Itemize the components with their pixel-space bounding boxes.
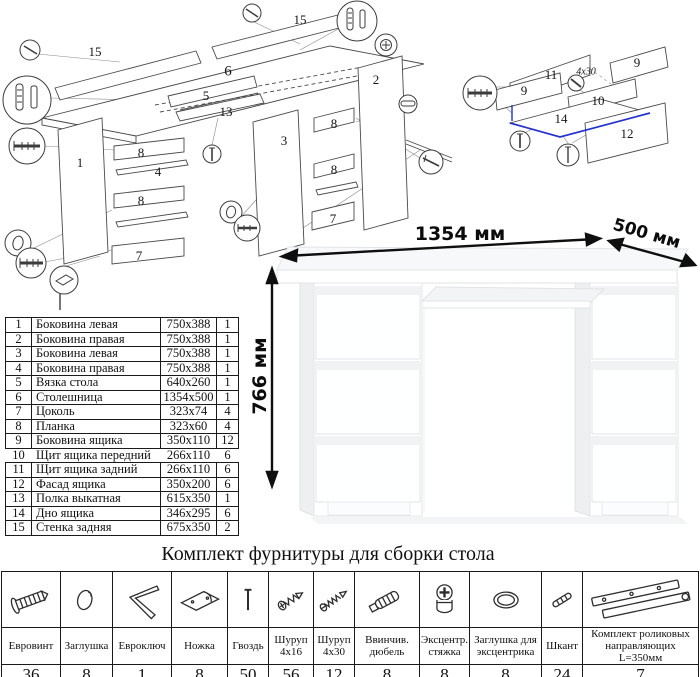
part-name: Дно ящика (32, 506, 161, 521)
part-number-label: 8 (138, 145, 145, 161)
hardware-table-row: ЕвровинтЗаглушкаЕвроключНожкаГвоздьШуруп… (2, 628, 699, 665)
part-number: 15 (6, 521, 32, 536)
callout-nail-icon (20, 40, 40, 60)
exploded-drawer-diagram: 11991014124x30 (450, 35, 700, 225)
parts-table-body: 1Боковина левая750x38812Боковина правая7… (6, 318, 239, 536)
part-size: 640x260 (161, 376, 217, 391)
hardware-icon-cell (420, 572, 470, 628)
part-name: Полка выкатная (32, 492, 161, 507)
parts-table-row: 9Боковина ящика350x11012 (6, 434, 239, 449)
parts-table-row: 12Фасад ящика350x2006 (6, 477, 239, 492)
part-qty: 1 (217, 492, 239, 507)
hardware-table: ЕвровинтЗаглушкаЕвроключНожкаГвоздьШуруп… (1, 571, 699, 677)
part-name: Столешница (32, 390, 161, 405)
part-size: 346x295 (161, 506, 217, 521)
hardware-name: Шуруп 4x16 (269, 628, 314, 665)
hardware-qty: 36 (2, 665, 61, 677)
part-number: 13 (6, 492, 32, 507)
part-qty: 4 (217, 419, 239, 434)
part-number-label: 4 (155, 164, 162, 180)
hardware-name: Шуруп 4x30 (314, 628, 355, 665)
parts-table-row: 7Цоколь323x744 (6, 405, 239, 420)
dowel-screw-icon (356, 572, 418, 627)
hexkey-icon (114, 572, 170, 627)
parts-table-row: 5Вязка стола640x2601 (6, 376, 239, 391)
hardware-qty: 56 (269, 665, 314, 677)
part-number-label: 14 (555, 111, 568, 127)
nail-icon (229, 572, 267, 627)
part-number: 9 (6, 434, 32, 449)
part-size: 750x388 (161, 332, 217, 347)
callout-dowel-sleeve-icon (3, 76, 51, 124)
part-number: 8 (6, 419, 32, 434)
parts-table-row: 11Щит ящика задний266x1106 (6, 463, 239, 478)
euroscrew-icon (3, 572, 59, 627)
part-size: 615x350 (161, 492, 217, 507)
part-qty: 1 (217, 347, 239, 362)
part-number: 11 (6, 463, 32, 478)
hardware-name: Ввинчив. дюбель (355, 628, 420, 665)
part-qty: 1 (217, 318, 239, 333)
part-size: 350x110 (161, 434, 217, 449)
parts-table-row: 10Щит ящика передний266x1106 (6, 448, 239, 463)
hardware-name: Гвоздь (228, 628, 269, 665)
part-qty: 1 (217, 361, 239, 376)
part-number: 10 (6, 448, 32, 463)
hardware-name: Шкант (542, 628, 583, 665)
part-number-label: 8 (331, 162, 338, 178)
part-number-label: 1 (77, 155, 84, 171)
hardware-table-row: 36818505612888247 (2, 665, 699, 677)
hardware-icon-cell (113, 572, 172, 628)
part-number-label: 12 (621, 126, 634, 142)
hardware-name: Евроключ (113, 628, 172, 665)
hardware-icon-cell (228, 572, 269, 628)
parts-table-row: 15Стенка задняя675x3502 (6, 521, 239, 536)
part-qty: 2 (217, 521, 239, 536)
callout-dowel-sleeve-icon (337, 1, 377, 41)
part-size: 323x74 (161, 405, 217, 420)
hardware-name: Ножка (172, 628, 228, 665)
cam-lock-icon (421, 572, 468, 627)
callout-dowel-icon (399, 95, 417, 113)
part-size: 323x60 (161, 419, 217, 434)
hardware-icon-cell (314, 572, 355, 628)
part-qty: 6 (217, 506, 239, 521)
hardware-qty: 8 (355, 665, 420, 677)
part-number-label: 13 (220, 104, 233, 120)
desk-height-dimension: 766 мм (249, 334, 271, 418)
part-name: Щит ящика передний (32, 448, 161, 463)
part-number: 3 (6, 347, 32, 362)
part-number-label: 10 (592, 93, 605, 109)
part-number: 2 (6, 332, 32, 347)
hardware-name: Евровинт (2, 628, 61, 665)
parts-table-row: 14Дно ящика346x2956 (6, 506, 239, 521)
cam-cap-icon (471, 572, 540, 627)
part-qty: 6 (217, 448, 239, 463)
part-number: 5 (6, 376, 32, 391)
part-number-label: 5 (203, 88, 210, 104)
hardware-qty: 50 (228, 665, 269, 677)
hardware-name: Комплект роликовых направляющих L=350мм (583, 628, 699, 665)
parts-table-row: 1Боковина левая750x3881 (6, 318, 239, 333)
part-number-label: 8 (331, 116, 338, 132)
hardware-name: Эксцентр. стяжка (420, 628, 470, 665)
part-number-label: 2 (373, 72, 380, 88)
hardware-qty: 8 (420, 665, 470, 677)
callout-foot-icon (50, 266, 78, 310)
hardware-icon-cell (2, 572, 61, 628)
callout-screw-icon (510, 131, 530, 151)
part-size: 750x388 (161, 361, 217, 376)
callout-screw-icon (419, 150, 443, 174)
exploded-drawer-drawing (450, 35, 700, 225)
part-number-label: 8 (138, 193, 145, 209)
part-size: 750x388 (161, 318, 217, 333)
hardware-table-body: ЕвровинтЗаглушкаЕвроключНожкаГвоздьШуруп… (2, 572, 699, 677)
hardware-qty: 7 (583, 665, 699, 677)
part-number-label: 9 (521, 83, 528, 99)
part-name: Боковина ящика (32, 434, 161, 449)
hardware-icon-cell (355, 572, 420, 628)
callout-screw-icon (203, 145, 221, 163)
part-qty: 6 (217, 477, 239, 492)
part-number-label: 7 (136, 248, 143, 264)
callout-euroscrew-icon (463, 76, 497, 110)
part-size: 1354x500 (161, 390, 217, 405)
part-number: 7 (6, 405, 32, 420)
hardware-name: Заглушка (61, 628, 113, 665)
hardware-qty: 24 (542, 665, 583, 677)
screw-short-icon (270, 572, 312, 627)
part-qty: 12 (217, 434, 239, 449)
hardware-icon-cell (269, 572, 314, 628)
part-qty: 1 (217, 332, 239, 347)
hardware-kit-title: Комплект фурнитуры для сборки стола (0, 543, 656, 566)
parts-table-row: 2Боковина правая750x3881 (6, 332, 239, 347)
desk-width-dimension: 1354 мм (400, 223, 520, 245)
hardware-qty: 12 (314, 665, 355, 677)
part-size: 750x388 (161, 347, 217, 362)
part-name: Стенка задняя (32, 521, 161, 536)
part-name: Фасад ящика (32, 477, 161, 492)
part-number-label: 3 (281, 133, 288, 149)
foot-icon (173, 572, 226, 627)
hardware-qty: 8 (470, 665, 542, 677)
part-name: Планка (32, 419, 161, 434)
part-number: 14 (6, 506, 32, 521)
callout-cam-lock-icon (375, 34, 397, 56)
part-size: 266x110 (161, 448, 217, 463)
hardware-qty: 8 (61, 665, 113, 677)
parts-table-row: 13Полка выкатная615x3501 (6, 492, 239, 507)
desk-render: 1354 мм 500 мм 766 мм (250, 225, 700, 545)
wood-dowel-icon (543, 572, 581, 627)
callout-nail-icon (243, 4, 261, 22)
hardware-icon-cell (542, 572, 583, 628)
part-number: 12 (6, 477, 32, 492)
part-name: Щит ящика задний (32, 463, 161, 478)
desk-drawing (250, 225, 700, 545)
part-name: Боковина правая (32, 361, 161, 376)
parts-table-row: 4Боковина правая750x3881 (6, 361, 239, 376)
part-name: Боковина правая (32, 332, 161, 347)
hardware-icon-cell (172, 572, 228, 628)
part-qty: 6 (217, 463, 239, 478)
part-size: 350x200 (161, 477, 217, 492)
parts-table-row: 8Планка323x604 (6, 419, 239, 434)
hardware-table-row (2, 572, 699, 628)
hardware-qty: 8 (172, 665, 228, 677)
part-number-label: 9 (634, 55, 641, 71)
part-size: 266x110 (161, 463, 217, 478)
part-name: Цоколь (32, 405, 161, 420)
callout-euroscrew-icon (9, 128, 45, 164)
part-number-label: 15 (294, 12, 307, 28)
part-qty: 1 (217, 376, 239, 391)
assembly-instruction-page: 156155133218487887 (0, 0, 700, 677)
part-name: Боковина левая (32, 318, 161, 333)
part-number-label: 11 (545, 67, 558, 83)
part-number-label: 4x30 (576, 67, 595, 78)
hardware-icon-cell (583, 572, 699, 628)
part-name: Боковина левая (32, 347, 161, 362)
hardware-qty: 1 (113, 665, 172, 677)
parts-table-row: 6Столешница1354x5001 (6, 390, 239, 405)
part-qty: 4 (217, 405, 239, 420)
part-number: 1 (6, 318, 32, 333)
drawer-slide-icon (584, 572, 697, 627)
part-size: 675x350 (161, 521, 217, 536)
callout-euroscrew-icon (16, 248, 46, 278)
part-name: Вязка стола (32, 376, 161, 391)
screw-long-icon (315, 572, 353, 627)
callout-nail-icon (557, 144, 579, 166)
part-number-label: 15 (89, 44, 102, 60)
hardware-icon-cell (470, 572, 542, 628)
part-number: 6 (6, 390, 32, 405)
part-number: 4 (6, 361, 32, 376)
parts-table-row: 3Боковина левая750x3881 (6, 347, 239, 362)
part-qty: 1 (217, 390, 239, 405)
hardware-icon-cell (61, 572, 113, 628)
parts-table: 1Боковина левая750x38812Боковина правая7… (5, 317, 239, 536)
hardware-name: Заглушка для эксцентрика (470, 628, 542, 665)
part-number-label: 6 (224, 64, 232, 81)
plug-icon (62, 572, 111, 627)
